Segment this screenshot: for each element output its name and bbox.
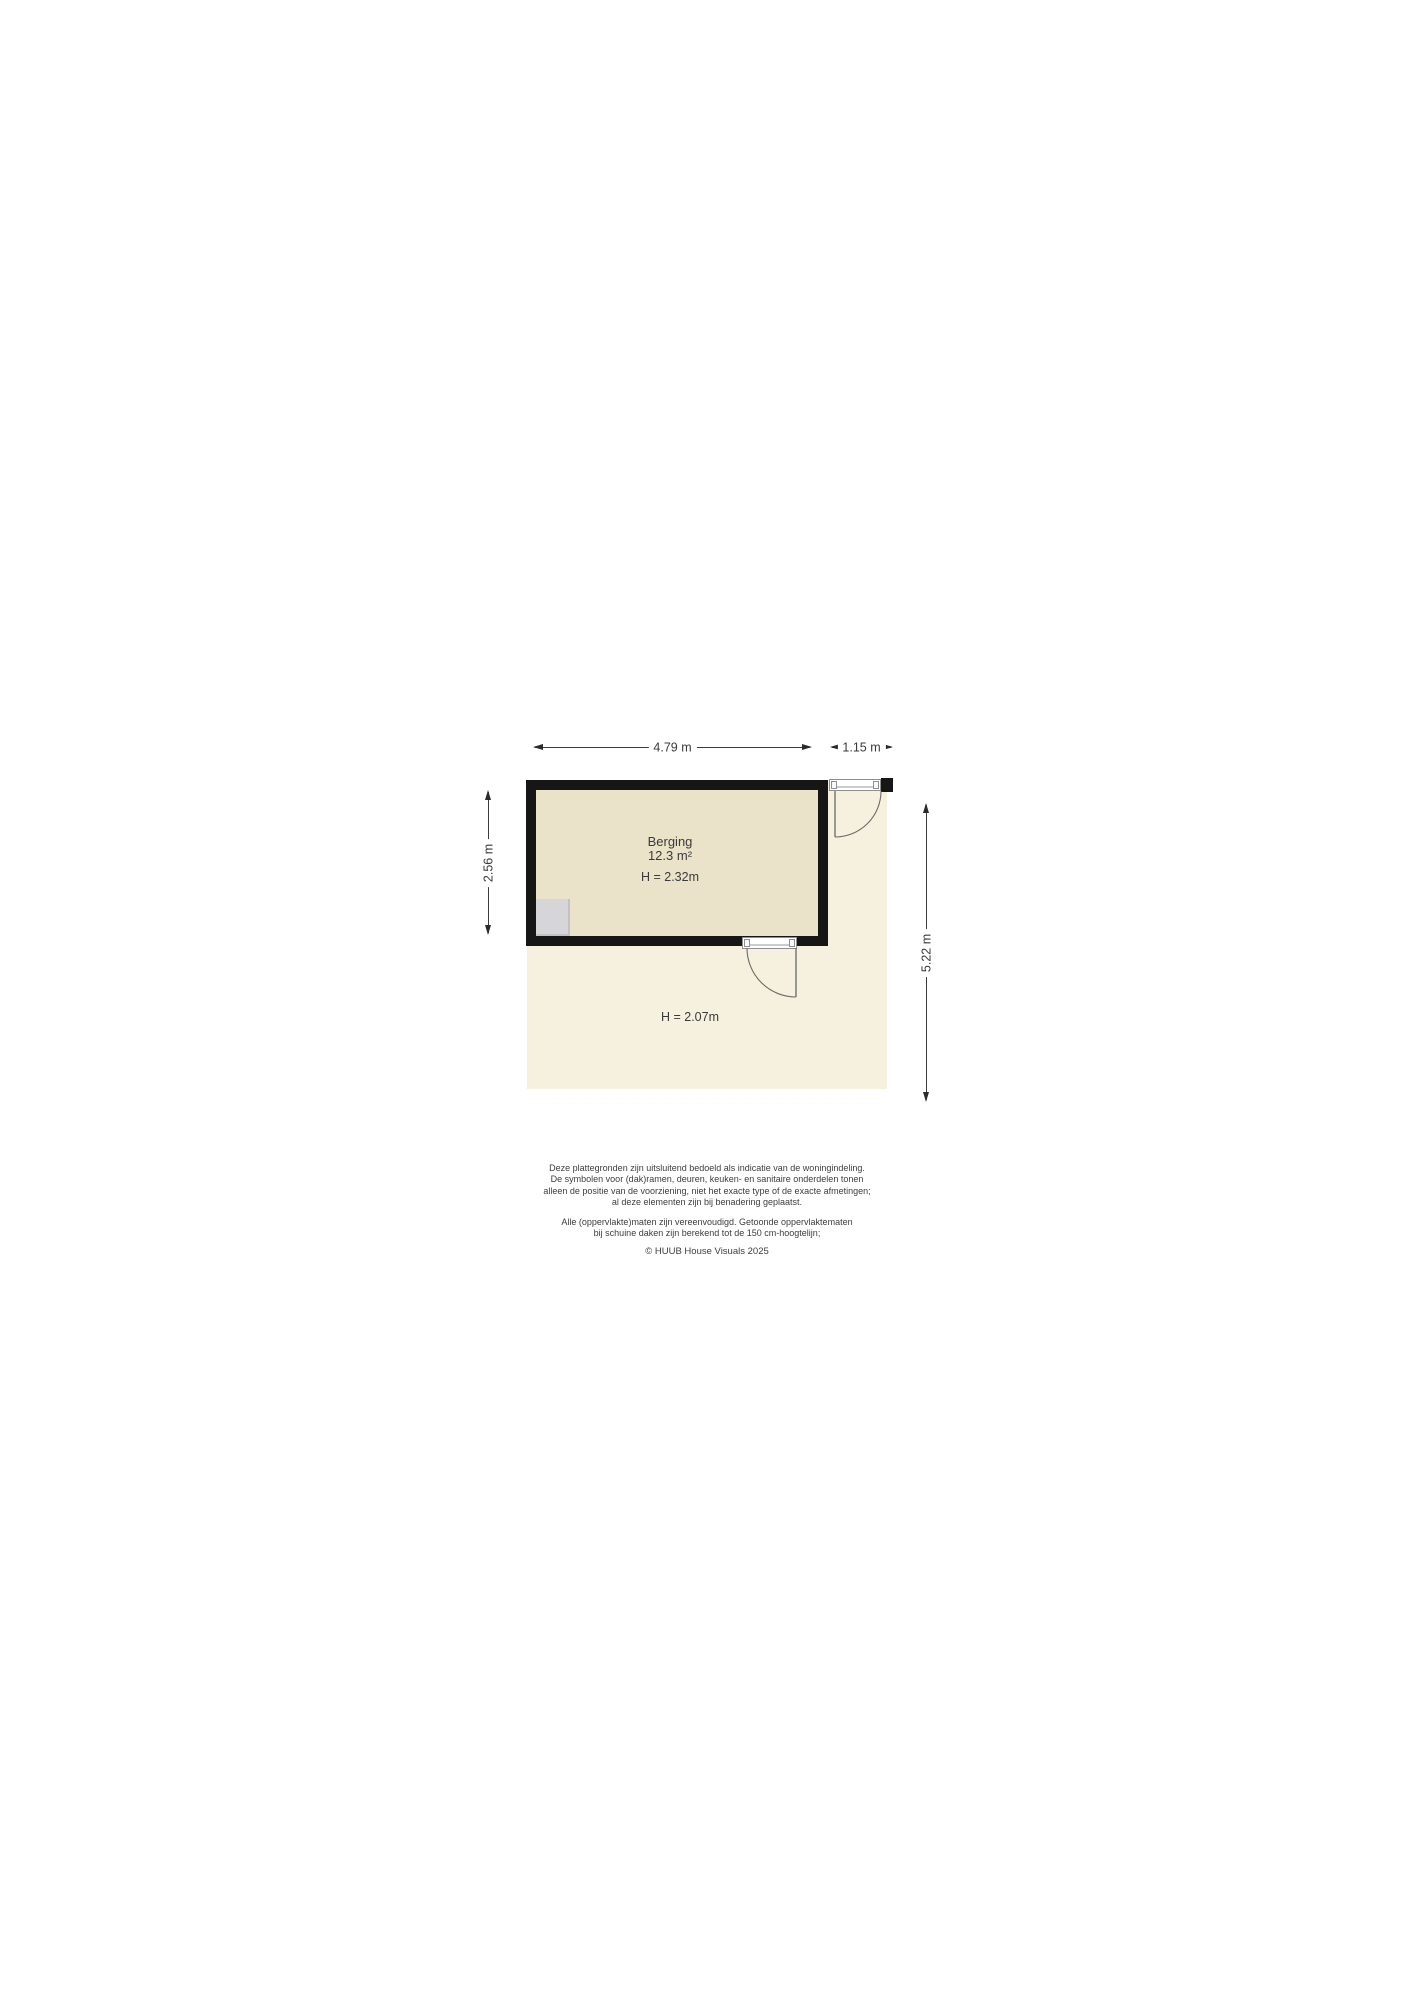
room-area: 12.3 m² [570, 849, 770, 863]
disclaimer-paragraph-1: Deze plattegronden zijn uitsluitend bedo… [0, 1163, 1414, 1208]
disclaimer-paragraph-2: Alle (oppervlakte)maten zijn vereenvoudi… [0, 1217, 1414, 1240]
arrow-right-icon [802, 744, 812, 750]
disclaimer-line: Alle (oppervlakte)maten zijn vereenvoudi… [0, 1217, 1414, 1228]
door-frame-rail [837, 786, 873, 788]
copyright-text: © HUUB House Visuals 2025 [0, 1246, 1414, 1257]
dimension-height-total: 5.22 m [920, 803, 933, 1102]
room-name: Berging [570, 835, 770, 849]
disclaimer-line: alleen de positie van de voorziening, ni… [0, 1186, 1414, 1197]
dimension-label: 2.56 m [482, 838, 495, 886]
door-hinge-icon [873, 781, 879, 789]
door-hinge-icon [789, 939, 795, 947]
dimension-width-side: 1.15 m [830, 741, 893, 754]
arrow-left-icon [533, 744, 543, 750]
arrow-up-icon [923, 803, 929, 813]
disclaimer-line: al deze elementen zijn bij benadering ge… [0, 1197, 1414, 1208]
arrow-down-icon [923, 1092, 929, 1102]
room-label-block: Berging 12.3 m² H = 2.32m [570, 835, 770, 885]
dimension-label: 4.79 m [648, 741, 696, 754]
room-ceiling-height: H = 2.32m [570, 871, 770, 885]
disclaimer-line: Deze plattegronden zijn uitsluitend bedo… [0, 1163, 1414, 1174]
door-frame-rail [750, 944, 789, 946]
floorplan-canvas: 4.79 m 1.15 m 2.56 m 5.22 m Berging 12.3… [0, 0, 1414, 2000]
dimension-label: 5.22 m [920, 928, 933, 976]
door-frame-top [829, 779, 881, 791]
storage-fixture [536, 899, 570, 936]
wall-end-block [881, 778, 893, 792]
disclaimer-line: bij schuine daken zijn berekend tot de 1… [0, 1228, 1414, 1239]
dimension-label: 1.15 m [837, 741, 885, 754]
arrow-up-icon [485, 790, 491, 800]
dimension-height-room: 2.56 m [482, 790, 495, 935]
outdoor-height-label: H = 2.07m [590, 1010, 790, 1024]
door-frame-bottom [742, 937, 797, 949]
disclaimer-line: De symbolen voor (dak)ramen, deuren, keu… [0, 1174, 1414, 1185]
arrow-down-icon [485, 925, 491, 935]
dimension-width-main: 4.79 m [533, 741, 812, 754]
